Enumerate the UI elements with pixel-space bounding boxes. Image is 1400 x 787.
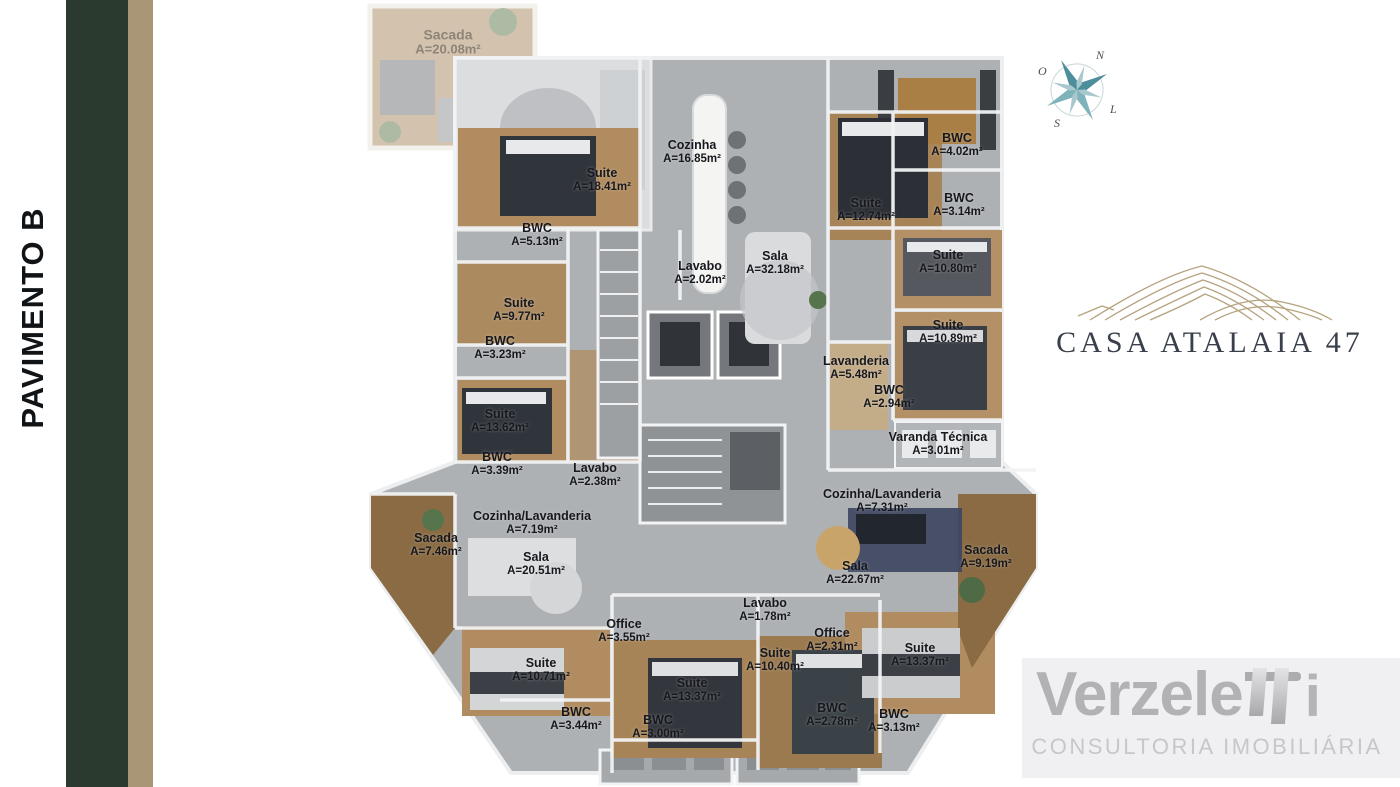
project-title: CASA ATALAIA 47 — [1050, 326, 1370, 360]
compass-west-label: O — [1038, 64, 1047, 79]
project-logo: CASA ATALAIA 47 — [1050, 258, 1370, 363]
agency-watermark: Verzele i CONSULTORIA IMOBILIÁRIA — [1022, 658, 1400, 778]
agency-brand-mark-icon — [1245, 664, 1303, 726]
compass-north-label: N — [1096, 48, 1104, 63]
agency-brand-text: Verzele — [1036, 664, 1243, 726]
mountain-logo-icon — [1050, 258, 1370, 324]
compass-east-label: L — [1110, 102, 1117, 117]
compass-south-label: S — [1054, 116, 1060, 131]
agency-subtitle: CONSULTORIA IMOBILIÁRIA — [1022, 734, 1392, 760]
compass-rose: N O L S — [1022, 40, 1132, 135]
agency-brand-suffix: i — [1305, 668, 1321, 726]
floorplan-page: PAVIMENTO B — [0, 0, 1400, 787]
